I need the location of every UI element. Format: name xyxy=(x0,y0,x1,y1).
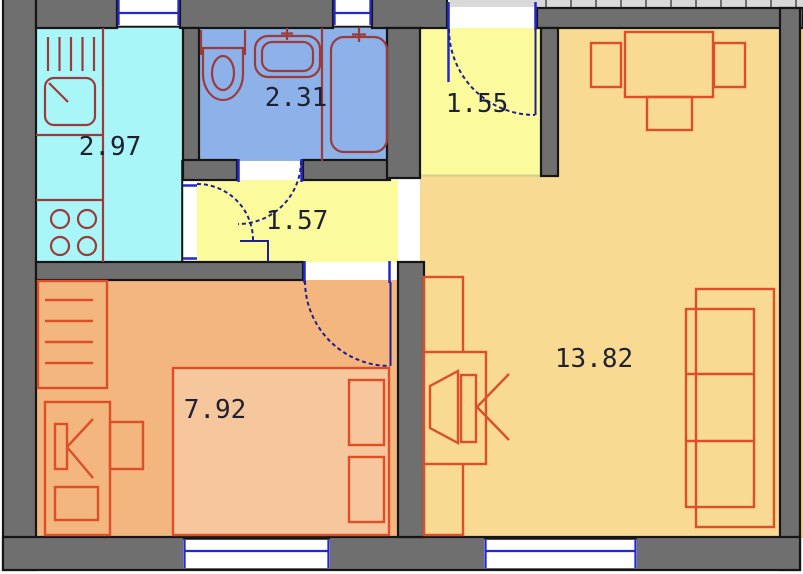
stair-strip xyxy=(450,0,803,7)
bed xyxy=(173,368,389,535)
wall-top-2 xyxy=(180,0,333,28)
window-living-bottom xyxy=(484,540,637,568)
wall-bathroom-bottom-right xyxy=(303,160,390,180)
bedroom-area-label: 7.92 xyxy=(184,395,247,425)
wall-bathroom-bottom-left xyxy=(183,160,237,180)
inner-hallway-area-label: 1.57 xyxy=(266,206,329,236)
wall-top-3 xyxy=(372,0,447,28)
bathroom-area-label: 2.31 xyxy=(265,83,328,113)
wall-kitchen-bathroom xyxy=(183,28,199,165)
living-room-area-label: 13.82 xyxy=(555,344,633,374)
wall-entry-hall-right xyxy=(541,28,558,176)
wall-top-right xyxy=(537,8,803,28)
window-bedroom-bottom xyxy=(183,540,330,568)
wall-top-1 xyxy=(36,0,117,28)
outside-stairs xyxy=(450,0,803,7)
wall-bathroom-right xyxy=(387,28,420,178)
wall-bedroom-top xyxy=(36,262,303,280)
wall-bedroom-living xyxy=(398,262,424,537)
wall-bottom xyxy=(3,537,800,570)
floor-plan: 2.97 2.31 1.57 1.55 7.92 13.82 xyxy=(0,0,803,574)
entry-hallway-area-label: 1.55 xyxy=(446,89,509,119)
wall-left xyxy=(3,0,36,570)
wall-right xyxy=(780,8,800,570)
kitchen-area-label: 2.97 xyxy=(79,132,142,162)
